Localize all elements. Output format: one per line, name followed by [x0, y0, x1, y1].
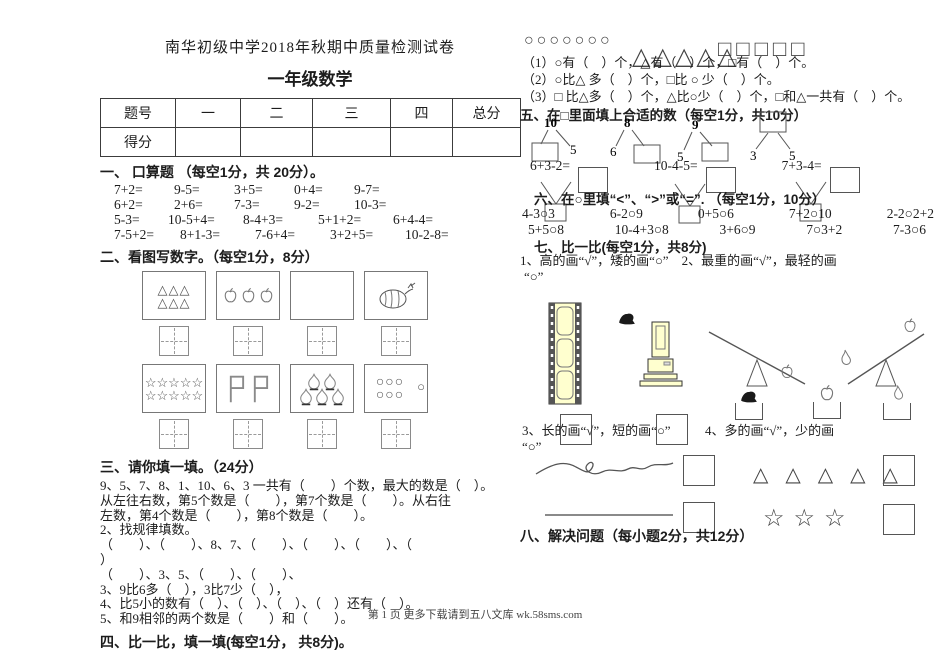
fill-in-line: （ ）、（ ）、8、7、（ ）、（ ）、（ ）、（ — [100, 538, 520, 553]
svg-text:8: 8 — [624, 115, 631, 130]
compare-item: 4-3○3 — [522, 206, 555, 222]
picture-cell-triangles: △△△ △△△ — [142, 271, 206, 356]
fill-in-line: 9、5、7、8、1、10、6、3 一共有（ ）个数，最大的数是（ ）。 — [100, 479, 520, 494]
apple-icon — [818, 384, 836, 402]
answer-grid[interactable] — [159, 326, 189, 356]
circles-row-icon: ○○○ — [376, 376, 404, 389]
apple-icon — [258, 287, 275, 304]
section6-heading: 六、在○里填“<”、“>”或“=”. （每空1分，10分） — [534, 188, 825, 208]
fill-in-line: 2、找规律填数。 — [100, 523, 520, 538]
picture-cell-empty — [290, 271, 354, 356]
apple-icon — [222, 287, 239, 304]
compare-q4-continued: “○” — [522, 438, 541, 455]
apple-icon — [782, 365, 792, 378]
score-table-header-cell: 二 — [241, 99, 313, 128]
compare-item: 2-2○2+2 — [887, 206, 934, 222]
oral-equation: 9-5= — [174, 182, 234, 197]
count-answer-box[interactable] — [883, 455, 915, 486]
fill-in-lines: 9、5、7、8、1、10、6、3 一共有（ ）个数，最大的数是（ ）。从左往右数… — [100, 479, 520, 627]
score-table: 题号一二三四总分 得分 — [100, 98, 521, 157]
weight-answer-3 — [880, 384, 914, 420]
weight-answer-2 — [810, 384, 844, 419]
apple-icon — [905, 319, 915, 332]
stars-row-icon: ☆☆☆ — [763, 504, 855, 533]
oral-equation: 8+1-3= — [180, 227, 255, 242]
page-subtitle: 一年级数学 — [100, 65, 520, 90]
flag-icon — [227, 373, 246, 405]
watermelon-icon — [375, 280, 417, 312]
svg-text:9: 9 — [692, 117, 699, 132]
peach-icon — [331, 387, 345, 406]
oral-equation: 7+2= — [114, 182, 174, 197]
shape-count-question: （2）○比△ 多（ ）个，□比 ○ 少（ ）个。 — [522, 71, 910, 88]
section2-heading: 二、看图写数字。（每空1分，8分） — [100, 247, 520, 267]
svg-text:6: 6 — [610, 144, 617, 159]
squiggle-line-icon — [534, 454, 676, 486]
oral-equation: 0+4= — [294, 182, 354, 197]
oral-equation: 7-6+4= — [255, 227, 330, 242]
score-table-header-row: 题号一二三四总分 — [101, 99, 521, 128]
oral-equation: 10-3= — [354, 197, 414, 212]
circle-icon: ○ — [417, 379, 425, 395]
circles-row-icon: ○○○○○○○ — [524, 32, 613, 50]
answer-grid[interactable] — [307, 326, 337, 356]
oral-equation: 10-2-8= — [405, 227, 480, 242]
compare-row-1: 4-3○36-2○90+5○67+2○102-2○2+2 — [522, 206, 934, 222]
answer-grid[interactable] — [233, 419, 263, 449]
svg-text:10: 10 — [544, 115, 557, 130]
oral-equation: 3+5= — [234, 182, 294, 197]
right-column: ○○○○○○○ △△△△△ □□□□□ （1）○有（ ）个，△有（ ）个，□有（… — [520, 30, 948, 640]
compare-item: 6-2○9 — [610, 206, 643, 222]
straight-line-icon — [545, 514, 673, 516]
compare-q2-continued: “○” — [524, 268, 543, 285]
ribbon-icon — [618, 310, 636, 325]
peach-icon — [315, 387, 329, 406]
score-table-score-row: 得分 — [101, 128, 521, 157]
triangles-row-icon: △△△ — [158, 296, 191, 309]
stars-row-icon: ☆☆☆☆☆ — [145, 376, 203, 389]
fill-in-line: 左数，第4个数是（ ），第8个数是（ ）。 — [100, 509, 520, 524]
count-answer-box[interactable] — [883, 504, 915, 535]
oral-equation: 2+6= — [174, 197, 234, 212]
oral-equation: 7-5+2= — [114, 227, 180, 242]
left-column: 南华初级中学2018年秋期中质量检测试卷 一年级数学 题号一二三四总分 得分 一… — [100, 30, 520, 652]
answer-grid[interactable] — [159, 419, 189, 449]
compare-q1-q2-text: 1、高的画“√”，矮的画“○” 2、最重的画“√”，最轻的画 — [520, 252, 837, 269]
oral-row-2: 6+2=2+6=7-3=9-2=10-3= — [100, 197, 520, 212]
count-pictures-grid: △△△ △△△ — [142, 271, 520, 449]
seesaw-right-icon — [836, 316, 932, 392]
shape-count-question: （3）□ 比△多（ ）个，△比○少（ ）个，□和△一共有（ ）个。 — [522, 88, 910, 105]
circles-row-icon: ○○○ — [376, 389, 404, 402]
triangles-row-icon: △△△ — [158, 283, 191, 296]
film-strip-icon — [548, 302, 582, 406]
answer-grid[interactable] — [381, 419, 411, 449]
section4-heading: 四、比一比，填一填(每空1分， 共8分)。 — [100, 632, 520, 652]
flag-icon — [251, 373, 270, 405]
oral-equation: 6+4-4= — [393, 212, 468, 227]
seesaw-left-icon — [705, 328, 813, 390]
section1-heading: 一、 口算题 （每空1分，共 20分）。 — [100, 162, 520, 182]
page-title: 南华初级中学2018年秋期中质量检测试卷 — [100, 36, 520, 57]
score-table-header-cell: 四 — [391, 99, 453, 128]
picture-cell-circles: ○ ○○○ ○○○ — [364, 364, 428, 449]
weight-answer-1 — [732, 388, 766, 420]
compare-q4-text: 4、多的画“√”，少的画 — [705, 422, 834, 439]
test-paper-page: 南华初级中学2018年秋期中质量检测试卷 一年级数学 题号一二三四总分 得分 一… — [0, 0, 950, 671]
oral-equation: 5+1+2= — [318, 212, 393, 227]
oral-equation: 7-3= — [234, 197, 294, 212]
compare-item: 0+5○6 — [698, 206, 734, 222]
svg-text:5: 5 — [570, 142, 577, 157]
score-table-header-cell: 三 — [313, 99, 391, 128]
fill-in-line: （ ）、3、5、（ ）、（ ）、 — [100, 568, 520, 583]
oral-equation: 9-2= — [294, 197, 354, 212]
answer-grid[interactable] — [381, 326, 411, 356]
answer-grid[interactable] — [233, 326, 263, 356]
fill-in-line: 3、9比6多（ ），3比7少（ ）， — [100, 583, 520, 598]
compare-item: 7+2○10 — [789, 206, 832, 222]
pear-icon — [842, 350, 851, 364]
bottle-monument-icon — [636, 320, 686, 392]
ribbon-icon — [740, 388, 758, 403]
pear-icon — [890, 384, 905, 403]
bracket-answer-box[interactable] — [813, 402, 841, 419]
section8-heading: 八、解决问题（每小题2分，共12分） — [520, 526, 753, 546]
oral-equation: 6+2= — [114, 197, 174, 212]
fill-in-line: 从左往右数，第5个数是（ ），第7个数是（ ）。从右往 — [100, 494, 520, 509]
oral-equation: 9-7= — [354, 182, 414, 197]
fill-in-line: ） — [100, 553, 520, 568]
stars-row-icon: ☆☆☆☆☆ — [145, 389, 203, 402]
oral-equation: 8-4+3= — [243, 212, 318, 227]
picture-cell-apples — [216, 271, 280, 356]
oral-row-4: 7-5+2=8+1-3=7-6+4=3+2+5=10-2-8= — [100, 227, 520, 242]
shape-count-questions: （1）○有（ ）个，△有（ ）个，□有（ ）个。（2）○比△ 多（ ）个，□比 … — [522, 54, 910, 105]
picture-cell-watermelon — [364, 271, 428, 356]
oral-equation: 3+2+5= — [330, 227, 405, 242]
compare-item: 3+6○9 — [720, 222, 756, 238]
oral-row-1: 7+2=9-5=3+5=0+4=9-7= — [100, 182, 520, 197]
bond-answer-box[interactable] — [760, 112, 786, 132]
picture-cell-peaches — [290, 364, 354, 449]
bracket-answer-box[interactable] — [735, 403, 763, 420]
oral-row-3: 5-3=10-5+4=8-4+3=5+1+2=6+4-4= — [100, 212, 520, 227]
triangles-row-icon: △ △ △ △ △ — [753, 462, 904, 487]
compare-q3-text: 3、长的画“√”，短的画“○” — [522, 422, 671, 439]
bracket-answer-box[interactable] — [883, 403, 911, 420]
length-answer-box[interactable] — [683, 455, 715, 486]
page-footer: 第 1 页 更多下载请到五八文库 wk.58sms.com — [0, 606, 950, 622]
peach-icon — [299, 387, 313, 406]
answer-grid[interactable] — [307, 419, 337, 449]
score-table-header-cell: 总分 — [453, 99, 521, 128]
picture-cell-stars: ☆☆☆☆☆ ☆☆☆☆☆ — [142, 364, 206, 449]
compare-item: 7-3○6 — [893, 222, 926, 238]
apple-icon — [240, 287, 257, 304]
picture-cell-flags — [216, 364, 280, 449]
score-table-header-cell: 一 — [176, 99, 241, 128]
oral-equation: 10-5+4= — [168, 212, 243, 227]
shape-count-question: （1）○有（ ）个，△有（ ）个，□有（ ）个。 — [522, 54, 910, 71]
equation-answer-box[interactable] — [830, 167, 860, 193]
compare-item: 7○3+2 — [806, 222, 842, 238]
score-table-header-cell: 题号 — [101, 99, 176, 128]
score-label-cell: 得分 — [101, 128, 176, 157]
oral-equation: 5-3= — [114, 212, 168, 227]
section3-heading: 三、请你填一填。（24分） — [100, 457, 520, 477]
